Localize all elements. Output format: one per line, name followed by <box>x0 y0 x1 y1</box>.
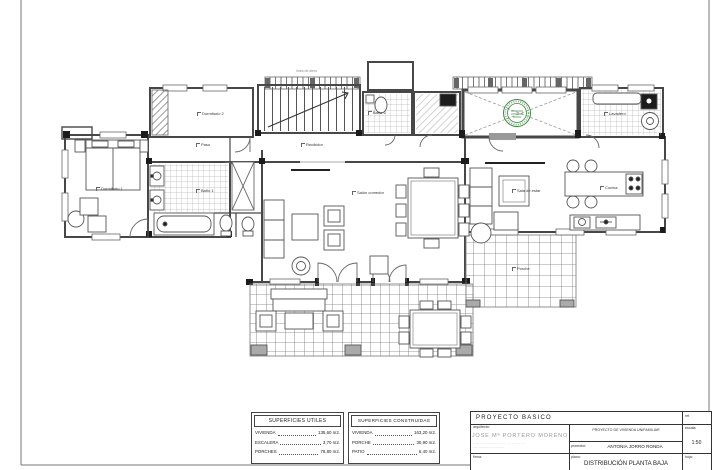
scale-value: 1:50 <box>682 440 711 446</box>
room-label-porche: Porche <box>512 267 530 271</box>
room-label-salon: Salón comedor <box>352 191 384 195</box>
ref-label: ref. <box>685 414 711 418</box>
row-value: 163,20 m2. <box>414 429 436 437</box>
room-label-dormitorio2: Dormitorio 2 <box>197 112 224 116</box>
signature-label: firma: <box>473 455 513 459</box>
plan-label: plano: <box>571 455 591 459</box>
row-name: ESCALERA <box>255 439 278 447</box>
room-label-lavadero: Lavadero <box>604 112 626 116</box>
eave-label: línea de alero <box>296 69 317 73</box>
architect-name: JOSE Mª PORTERO MORENO <box>471 433 569 439</box>
row-value: 6,40 m2. <box>419 448 436 456</box>
project-type: PROYECTO BASICO <box>471 412 682 424</box>
table-row: VIVIENDA135,60 m2. <box>252 429 343 437</box>
room-label-bano1: Baño 1 <box>196 189 214 193</box>
row-name: PATIO <box>352 448 365 456</box>
row-value: 30,90 m2. <box>416 439 436 447</box>
table-construidas-title: SUPERFICIES CONSTRUIDAS <box>351 415 437 427</box>
living-furniture <box>264 200 388 275</box>
closet-x <box>232 162 254 210</box>
row-value: 135,60 m2. <box>318 429 340 437</box>
table-utiles-title: SUPERFICIES UTILES <box>254 415 341 427</box>
architect-cell: arquitecto: JOSE Mª PORTERO MORENO ·· ··… <box>471 424 569 453</box>
row-name: VIVIENDA <box>255 429 276 437</box>
room-label-cocina: Cocina <box>600 186 617 190</box>
table-row: PATIO6,40 m2. <box>349 448 439 456</box>
row-name: PORCHE <box>352 439 371 447</box>
dining-furniture <box>396 168 469 248</box>
blueprint-page: línea de alero Dormitorio 2 Baño 2 Lavad… <box>0 0 726 470</box>
table-row: PORCHES78,80 m2. <box>252 448 343 456</box>
visa-stamp-icon <box>504 100 531 127</box>
promoter-label: promotor: <box>571 444 591 448</box>
room-label-paso: Paso <box>196 143 210 147</box>
page-label: hoja: <box>685 455 711 459</box>
table-row: PORCHE30,90 m2. <box>349 439 439 447</box>
room-label-sala-estar: Sala de estar <box>512 189 541 193</box>
row-value: 78,80 m2. <box>320 448 340 456</box>
plan-name: DISTRIBUCIÓN PLANTA BAJA <box>570 461 682 467</box>
architect-contact2: ····· ··········· ·········· ··· <box>473 446 567 450</box>
room-label-bano2: Baño 2 <box>368 111 386 115</box>
scale-label: escala: <box>685 426 711 430</box>
room-label-dormitorio1: Dormitorio 1 <box>96 187 123 191</box>
table-superficies-utiles: SUPERFICIES UTILES VIVIENDA135,60 m2. ES… <box>251 412 344 464</box>
patio-door-sill <box>489 133 516 140</box>
row-value: 3,70 m2. <box>323 439 340 447</box>
title-block: PROYECTO BASICO ref. arquitecto: JOSE Mª… <box>470 411 712 470</box>
project-description: PROYECTO DE VIVIENDA UNIFAMILIAR <box>570 428 682 432</box>
row-name: PORCHES <box>255 448 277 456</box>
kitchen-furniture <box>565 160 643 230</box>
table-superficies-construidas: SUPERFICIES CONSTRUIDAS VIVIENDA163,20 m… <box>348 412 440 464</box>
promoter-name: ANTONIA JORRO RONDA <box>589 444 681 449</box>
floor-plan-svg <box>0 0 726 470</box>
patio <box>465 92 576 140</box>
table-row: ESCALERA3,70 m2. <box>252 439 343 447</box>
room-label-recibidor: Recibidor <box>301 143 323 147</box>
table-row: VIVIENDA163,20 m2. <box>349 429 439 437</box>
row-name: VIVIENDA <box>352 429 373 437</box>
architect-label: arquitecto: <box>473 425 569 429</box>
